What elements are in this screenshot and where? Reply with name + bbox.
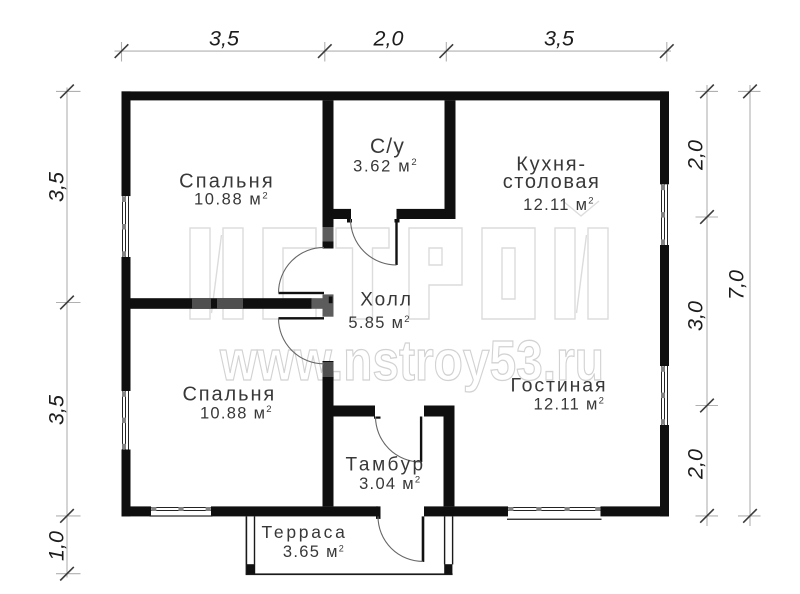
svg-text:Терраса: Терраса bbox=[261, 522, 347, 542]
svg-text:3,5: 3,5 bbox=[45, 171, 69, 202]
svg-text:12.11 м2: 12.11 м2 bbox=[523, 196, 595, 214]
svg-text:Спальня: Спальня bbox=[182, 383, 276, 405]
svg-text:Гостиная: Гостиная bbox=[510, 375, 607, 397]
svg-text:2,0: 2,0 bbox=[684, 140, 708, 171]
svg-text:С/у: С/у bbox=[370, 135, 405, 158]
svg-text:10.88 м2: 10.88 м2 bbox=[200, 404, 273, 422]
svg-text:12.11 м2: 12.11 м2 bbox=[534, 395, 606, 413]
svg-text:1,0: 1,0 bbox=[45, 531, 69, 561]
svg-text:7,0: 7,0 bbox=[725, 270, 749, 300]
svg-text:Спальня: Спальня bbox=[179, 171, 275, 193]
svg-text:столовая: столовая bbox=[503, 171, 601, 193]
svg-text:3.62 м2: 3.62 м2 bbox=[353, 157, 418, 175]
svg-text:2,0: 2,0 bbox=[373, 27, 404, 51]
svg-text:10.88 м2: 10.88 м2 bbox=[194, 190, 269, 208]
svg-text:Тамбур: Тамбур bbox=[346, 455, 426, 476]
svg-text:3,5: 3,5 bbox=[45, 394, 69, 425]
svg-text:2,0: 2,0 bbox=[684, 449, 708, 480]
svg-text:3,5: 3,5 bbox=[209, 27, 240, 51]
svg-text:3.04 м2: 3.04 м2 bbox=[359, 475, 421, 493]
svg-text:3,0: 3,0 bbox=[684, 301, 708, 331]
svg-text:5.85 м2: 5.85 м2 bbox=[348, 314, 410, 332]
svg-text:Холл: Холл bbox=[360, 290, 413, 311]
svg-text:3,5: 3,5 bbox=[544, 27, 575, 51]
svg-text:3.65 м2: 3.65 м2 bbox=[283, 543, 345, 561]
